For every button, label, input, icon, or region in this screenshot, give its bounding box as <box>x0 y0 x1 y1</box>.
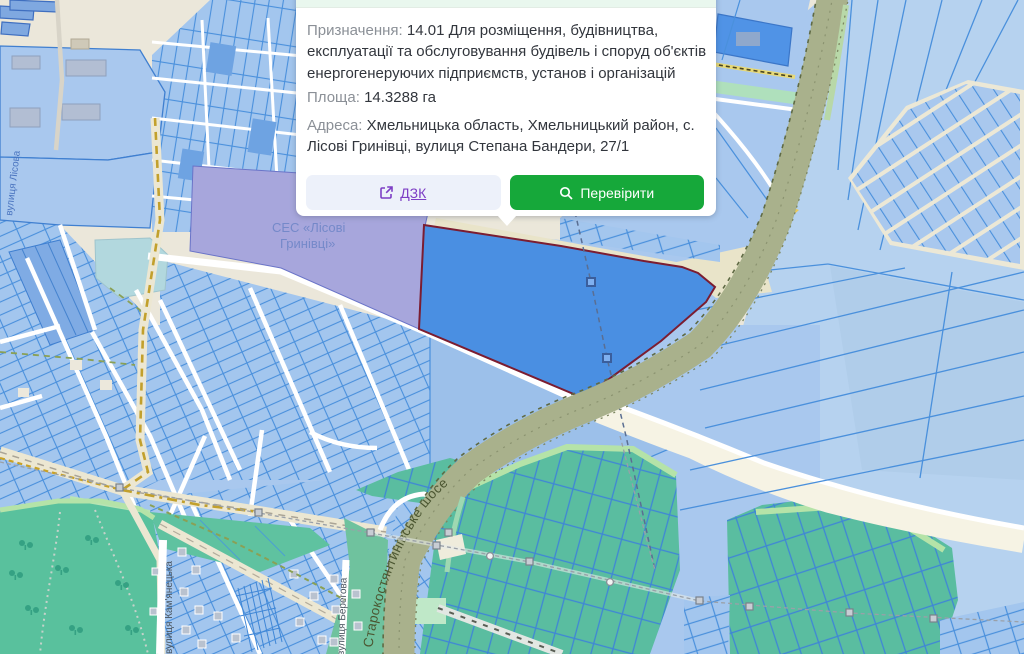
svg-text:вулиця Кам'янецька: вулиця Кам'янецька <box>164 561 175 654</box>
svg-text:Гринівці»: Гринівці» <box>280 236 335 251</box>
svg-text:СЕС «Лісові: СЕС «Лісові <box>272 220 345 235</box>
